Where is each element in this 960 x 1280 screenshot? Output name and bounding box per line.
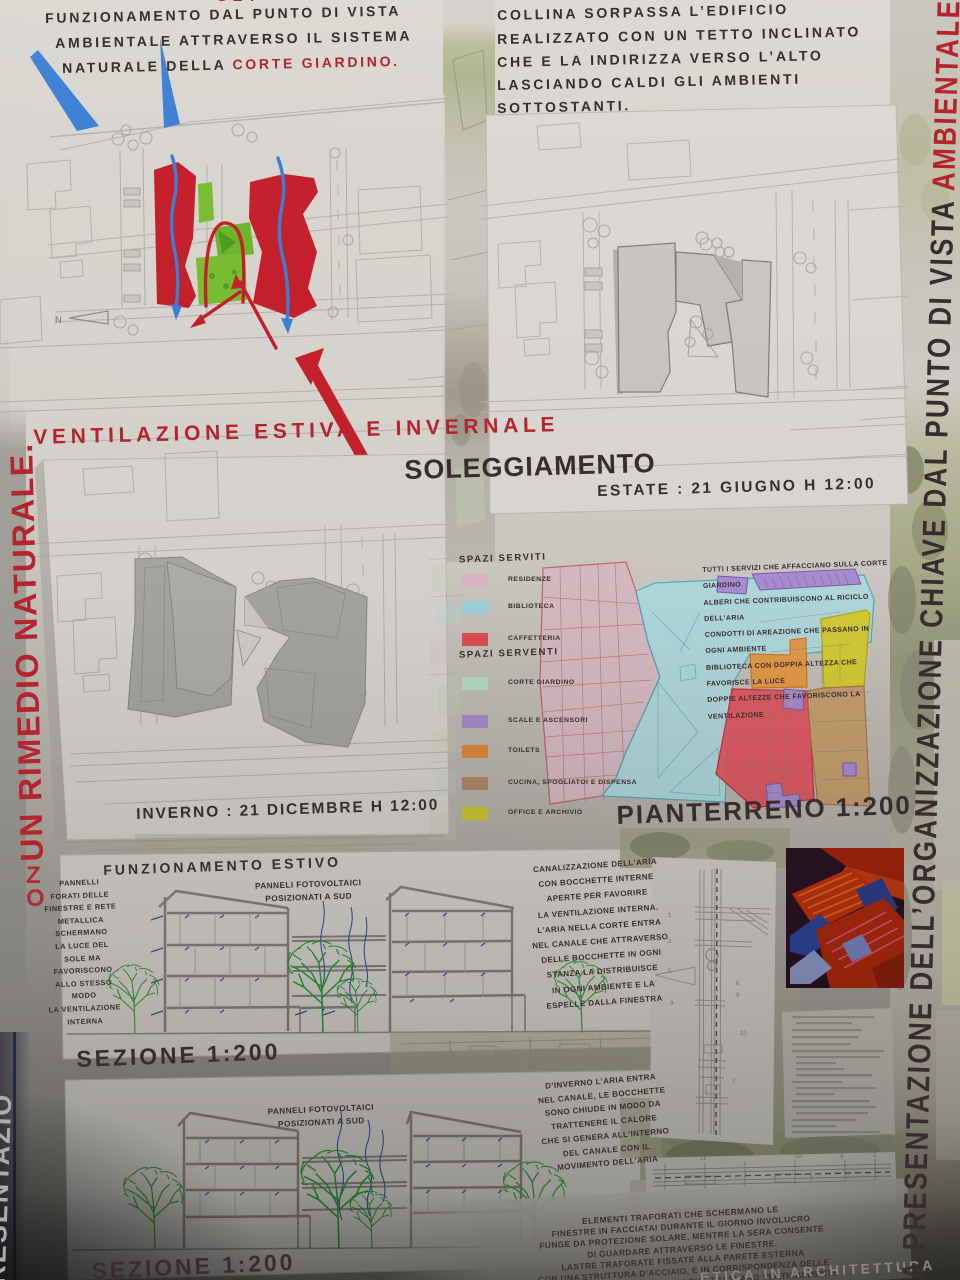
- svg-text:N: N: [55, 315, 62, 325]
- svg-text:10: 10: [740, 1031, 747, 1037]
- svg-text:11: 11: [700, 1156, 707, 1162]
- svg-text:10: 10: [795, 1154, 802, 1160]
